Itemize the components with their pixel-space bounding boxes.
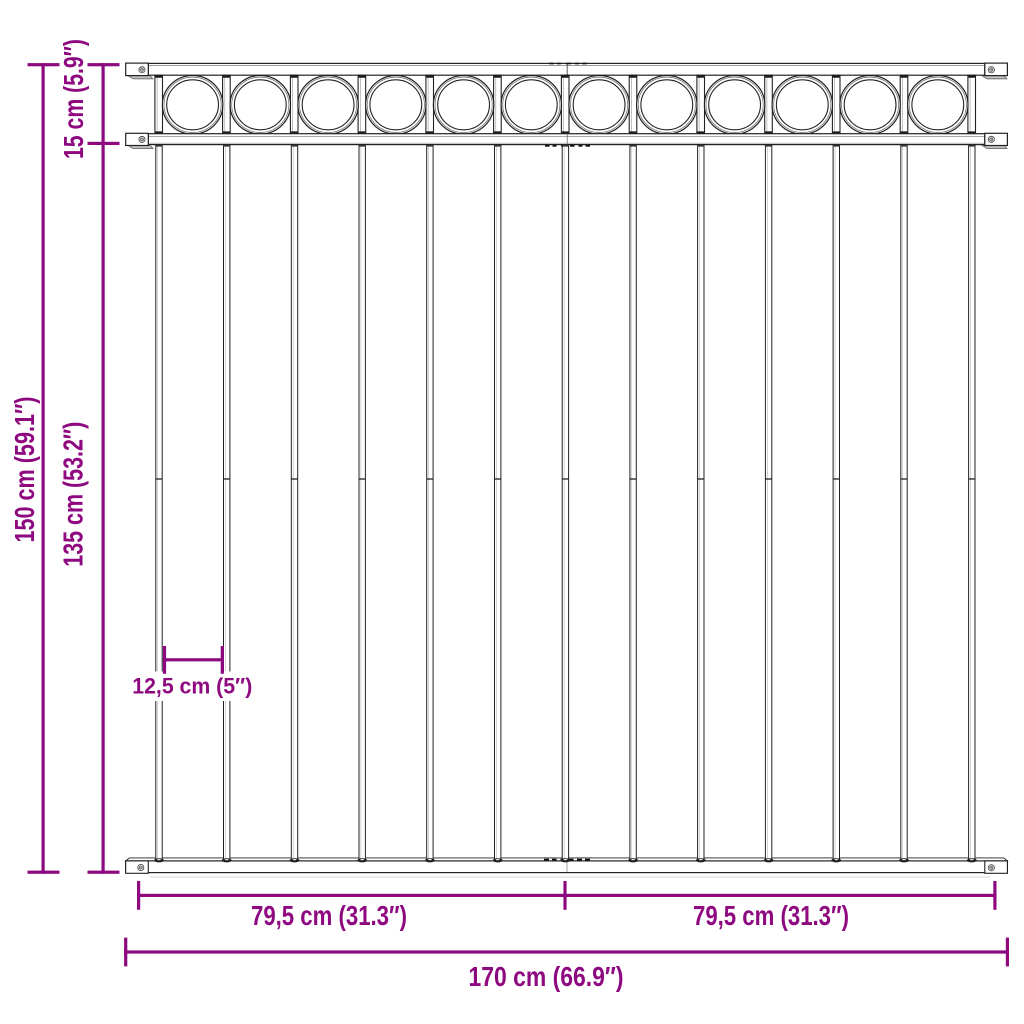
svg-text:15 cm (5.9″): 15 cm (5.9″) <box>58 39 89 159</box>
svg-text:170 cm (66.9″): 170 cm (66.9″) <box>469 961 624 992</box>
svg-text:150 cm (59.1″): 150 cm (59.1″) <box>9 397 40 543</box>
svg-text:12,5 cm (5″): 12,5 cm (5″) <box>132 674 252 699</box>
svg-text:79,5 cm (31.3″): 79,5 cm (31.3″) <box>251 900 407 931</box>
svg-text:135 cm (53.2″): 135 cm (53.2″) <box>58 422 89 567</box>
svg-text:79,5 cm (31.3″): 79,5 cm (31.3″) <box>693 900 849 931</box>
